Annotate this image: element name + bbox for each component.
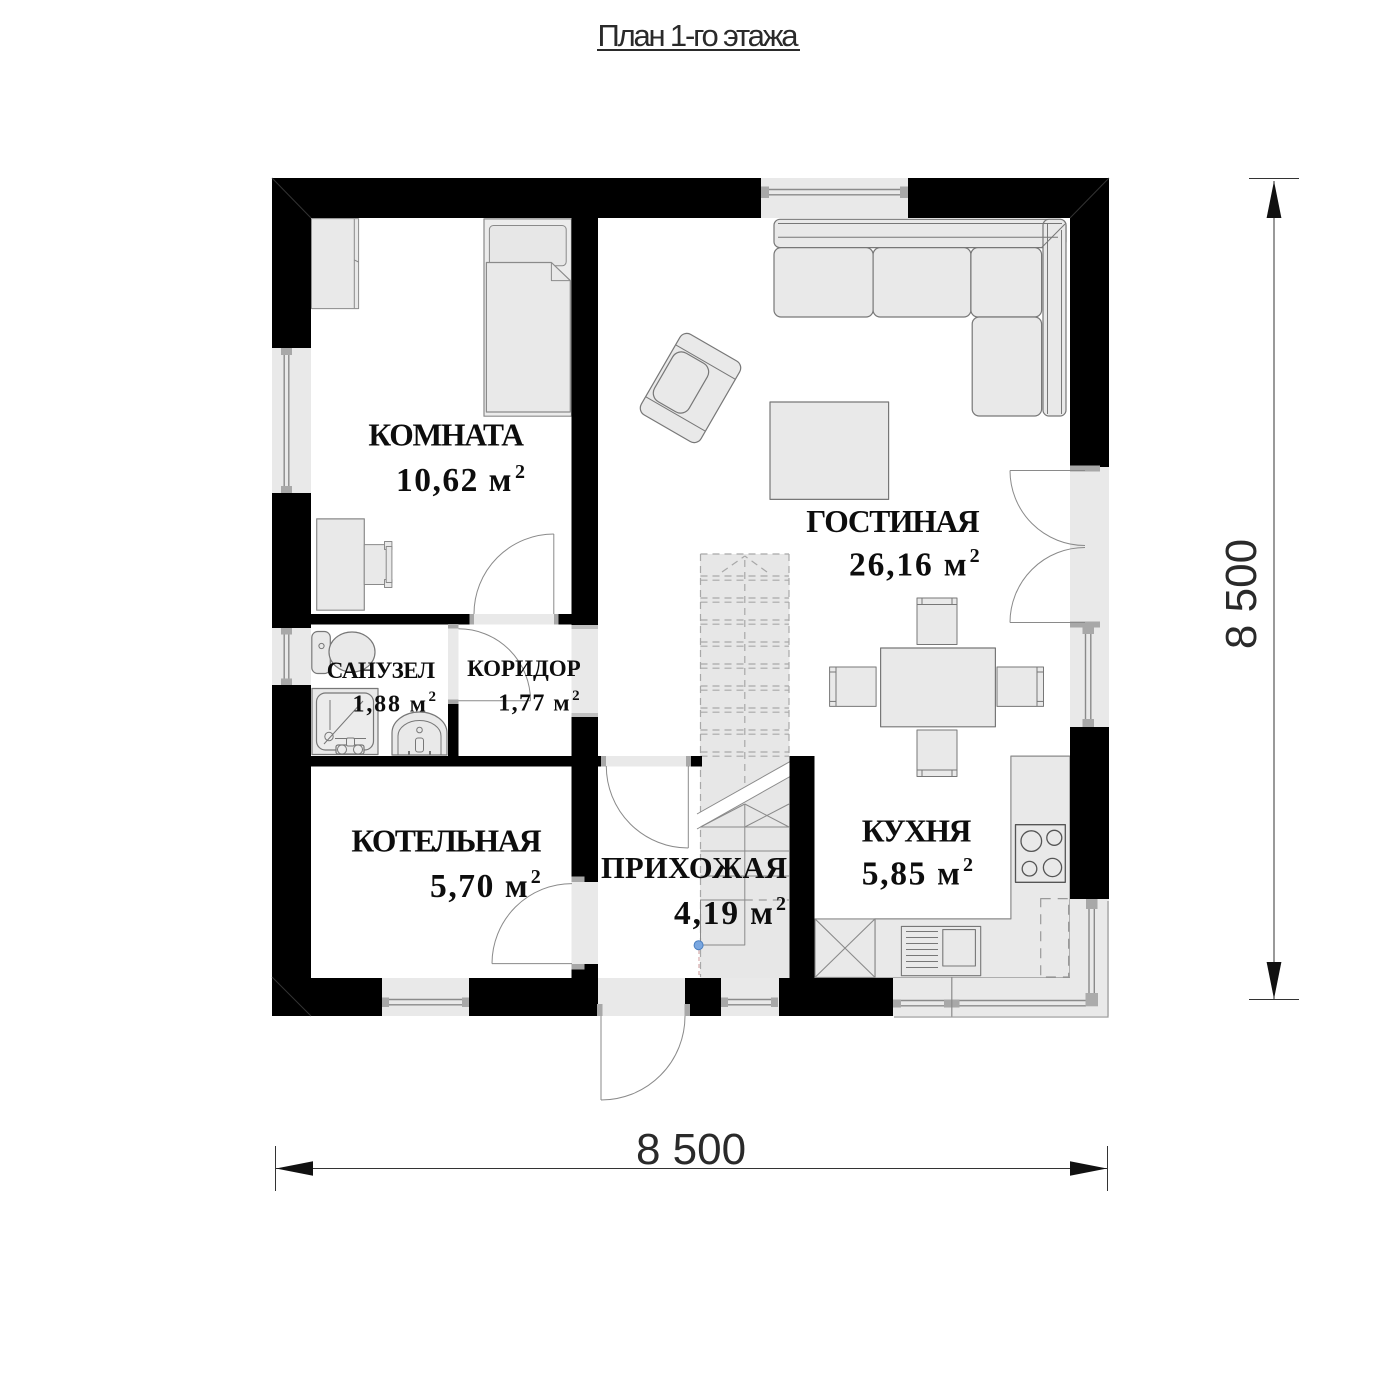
svg-text:ПРИХОЖАЯ: ПРИХОЖАЯ	[601, 851, 787, 885]
svg-text:САНУЗЕЛ: САНУЗЕЛ	[327, 658, 435, 683]
svg-text:8 500: 8 500	[636, 1125, 746, 1174]
svg-text:5,70 м: 5,70 м	[430, 868, 528, 905]
svg-text:2: 2	[531, 866, 541, 888]
svg-text:10,62 м: 10,62 м	[396, 462, 512, 499]
svg-text:4,19 м: 4,19 м	[674, 895, 773, 932]
svg-text:1,77 м: 1,77 м	[498, 690, 569, 716]
svg-text:2: 2	[776, 893, 786, 915]
svg-text:2: 2	[963, 854, 973, 876]
svg-text:2: 2	[429, 689, 437, 705]
svg-text:26,16 м: 26,16 м	[849, 546, 967, 583]
svg-text:5,85 м: 5,85 м	[862, 856, 960, 893]
svg-text:КОРИДОР: КОРИДОР	[467, 656, 581, 681]
svg-text:КУХНЯ: КУХНЯ	[862, 814, 972, 849]
svg-text:КОТЕЛЬНАЯ: КОТЕЛЬНАЯ	[351, 823, 541, 858]
svg-text:1,88 м: 1,88 м	[353, 691, 427, 717]
svg-text:2: 2	[970, 545, 980, 567]
svg-text:2: 2	[515, 461, 525, 483]
svg-text:2: 2	[572, 688, 580, 704]
svg-text:План 1-го этажа: План 1-го этажа	[598, 18, 800, 53]
svg-text:КОМНАТА: КОМНАТА	[368, 418, 524, 453]
svg-text:ГОСТИНАЯ: ГОСТИНАЯ	[806, 504, 980, 539]
svg-text:8 500: 8 500	[1217, 539, 1266, 649]
